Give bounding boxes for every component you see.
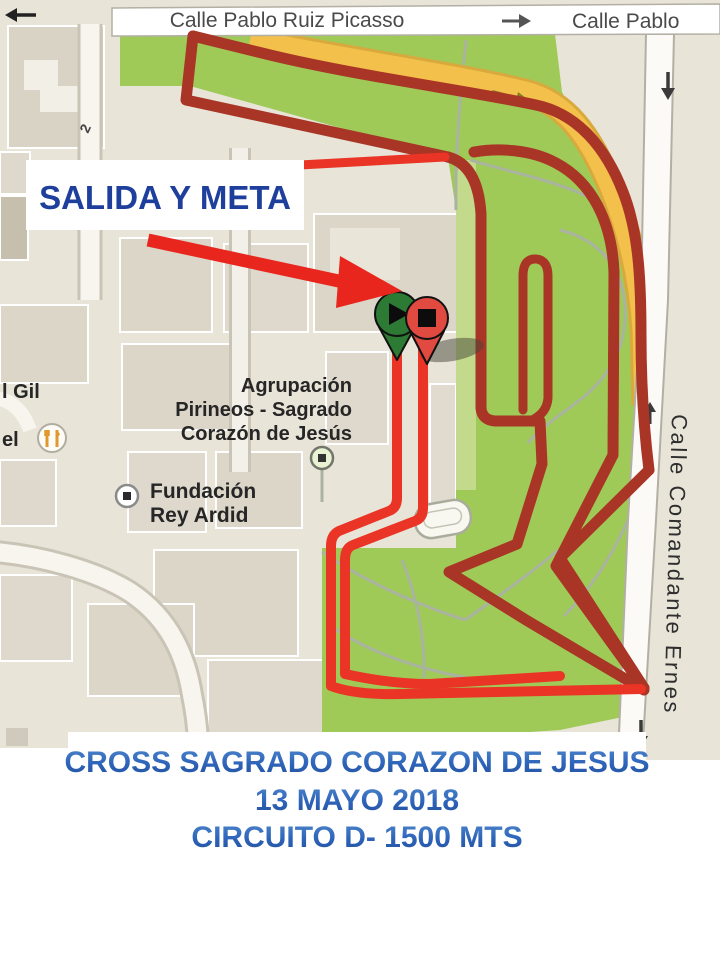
street-top-label: Calle Pablo Ruiz Picasso: [170, 9, 405, 32]
top-street: Calle Pablo Ruiz Picasso Calle Pablo: [5, 4, 720, 36]
agrupacion-label-line2: Pirineos - Sagrado: [175, 399, 352, 421]
restaurant-icon: [38, 424, 66, 452]
map-canvas: Calle Pablo Ruiz Picasso Calle Pablo 2 A…: [0, 0, 720, 960]
title-line1: CROSS SAGRADO CORAZON DE JESUS: [64, 746, 649, 779]
fundacion-label-line1: Fundación: [150, 480, 256, 503]
street-top-right-label: Calle Pablo: [572, 10, 679, 33]
left-edge-label-2: el: [2, 429, 19, 451]
race-map-flyer: Calle Pablo Ruiz Picasso Calle Pablo 2 A…: [0, 0, 720, 960]
stop-icon: [418, 309, 436, 327]
left-edge-label-1: l Gil: [2, 381, 40, 403]
callout-label: SALIDA Y META: [39, 179, 291, 216]
title-line2: 13 MAYO 2018: [255, 784, 459, 817]
agrupacion-label-line3: Corazón de Jesús: [181, 423, 352, 445]
agrupacion-label-line1: Agrupación: [241, 375, 352, 397]
agrupacion-poi-dot-icon: [311, 447, 333, 469]
fundacion-poi-dot-icon: [116, 485, 138, 507]
title-box: CROSS SAGRADO CORAZON DE JESUS 13 MAYO 2…: [64, 732, 649, 858]
fundacion-label-line2: Rey Ardid: [150, 504, 248, 527]
title-line3: CIRCUITO D- 1500 MTS: [191, 821, 522, 854]
